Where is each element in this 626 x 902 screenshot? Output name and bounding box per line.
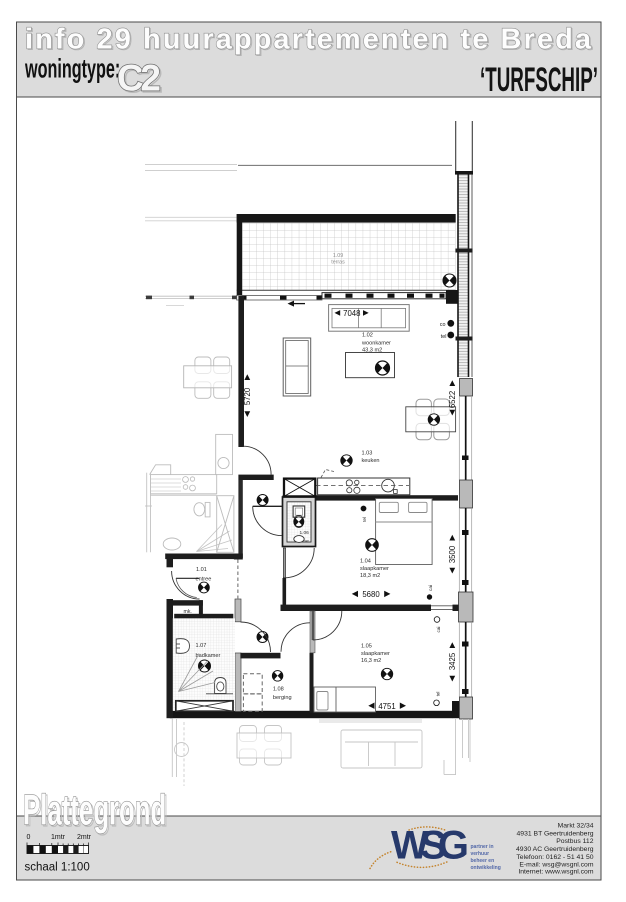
svg-text:co: co (440, 322, 446, 328)
svg-text:1.09: 1.09 (333, 253, 343, 259)
svg-text:1.02: 1.02 (362, 333, 373, 339)
svg-text:1.01: 1.01 (196, 567, 207, 573)
svg-text:verhuur: verhuur (471, 851, 490, 857)
svg-text:1.08: 1.08 (273, 686, 284, 692)
svg-text:wc: wc (305, 539, 310, 543)
svg-text:7048: 7048 (343, 309, 360, 318)
svg-text:16,3 m2: 16,3 m2 (361, 658, 381, 664)
svg-text:6522: 6522 (448, 391, 457, 408)
svg-text:Telefoon: 0162 - 51 41 50: Telefoon: 0162 - 51 41 50 (516, 854, 593, 861)
svg-text:0: 0 (26, 834, 30, 841)
svg-text:slaapkamer: slaapkamer (361, 651, 390, 657)
svg-text:4931 BT Geertruidenberg: 4931 BT Geertruidenberg (517, 830, 594, 837)
svg-text:slaapkamer: slaapkamer (360, 566, 389, 572)
svg-text:‘TURFSCHIP’: ‘TURFSCHIP’ (480, 60, 598, 98)
svg-text:Postbus 112: Postbus 112 (556, 838, 594, 845)
svg-text:5680: 5680 (362, 590, 380, 599)
svg-text:info 29 huurappartementen te B: info 29 huurappartementen te Breda (25, 24, 592, 56)
svg-text:1.06: 1.06 (300, 530, 310, 536)
svg-text:C2: C2 (117, 58, 161, 99)
svg-text:4930 AC Geertruidenberg: 4930 AC Geertruidenberg (516, 846, 594, 853)
svg-text:berging: berging (273, 695, 292, 701)
svg-text:keuken: keuken (362, 458, 380, 464)
svg-text:Plattegrond: Plattegrond (23, 786, 166, 835)
svg-text:1.03: 1.03 (362, 451, 373, 457)
svg-text:cai: cai (436, 627, 441, 633)
svg-text:woonkamer: woonkamer (361, 340, 391, 346)
svg-text:1.04: 1.04 (360, 559, 371, 565)
svg-text:woningtype:: woningtype: (24, 53, 120, 83)
svg-text:tel: tel (362, 517, 367, 522)
svg-text:Internet: www.wsgnl.com: Internet: www.wsgnl.com (518, 869, 594, 876)
svg-text:1mtr: 1mtr (51, 834, 66, 841)
svg-text:ontwikkeling: ontwikkeling (471, 865, 501, 871)
svg-text:E-mail: wsg@wsgnl.com: E-mail: wsg@wsgnl.com (519, 862, 593, 869)
svg-text:WSG: WSG (391, 824, 469, 868)
svg-text:cai: cai (428, 585, 433, 591)
svg-text:5720: 5720 (243, 387, 252, 405)
svg-text:3500: 3500 (448, 545, 457, 563)
svg-text:schaal 1:100: schaal 1:100 (25, 862, 90, 874)
svg-text:18,3 m2: 18,3 m2 (360, 573, 380, 579)
svg-text:partner in: partner in (471, 844, 494, 850)
svg-text:Markt 32/34: Markt 32/34 (558, 823, 594, 830)
svg-text:1.07: 1.07 (196, 643, 207, 649)
svg-text:terras: terras (331, 260, 345, 266)
svg-text:beheer en: beheer en (471, 858, 495, 864)
svg-text:3425: 3425 (448, 652, 457, 670)
svg-text:entree: entree (196, 576, 212, 582)
svg-text:4751: 4751 (378, 702, 395, 711)
svg-text:tel: tel (435, 692, 440, 697)
svg-text:mk.: mk. (184, 609, 192, 615)
svg-text:1.05: 1.05 (361, 644, 372, 650)
svg-text:tel: tel (441, 334, 447, 340)
svg-text:2mtr: 2mtr (77, 834, 92, 841)
